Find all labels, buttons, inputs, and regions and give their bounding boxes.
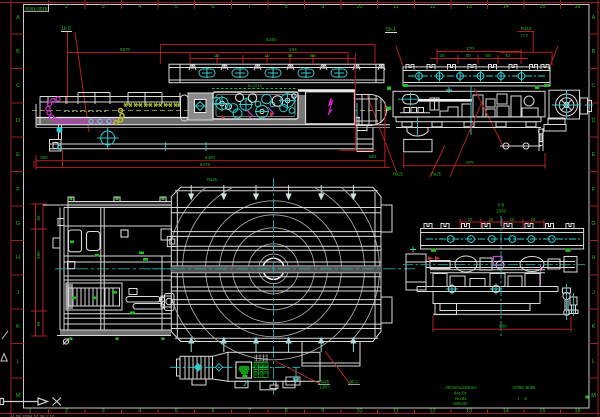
svg-text:B: B [592,49,596,55]
svg-text:5: 5 [175,4,178,10]
svg-text:8: 8 [285,4,288,10]
svg-text:HTBE-8085: HTBE-8085 [513,385,536,390]
svg-text:14: 14 [503,409,509,415]
svg-text:20: 20 [531,217,536,222]
svg-text:600: 600 [499,324,507,329]
svg-text:Ra25: Ra25 [431,172,442,177]
svg-text:8: 8 [285,409,288,415]
svg-text:E: E [16,152,20,158]
svg-text:3: 3 [102,4,105,10]
svg-text:3: 3 [102,409,105,415]
svg-text:13: 13 [466,409,472,415]
svg-text:7: 7 [248,409,251,415]
svg-text:580: 580 [36,251,41,259]
svg-text:11: 11 [393,4,399,10]
svg-text:12: 12 [430,409,436,415]
svg-text:H: H [592,255,596,261]
svg-text:5 B: 5 B [498,203,505,208]
svg-text:10: 10 [356,409,362,415]
svg-text:16: 16 [574,409,580,415]
svg-text:Ra12: Ra12 [521,26,532,31]
svg-text:6: 6 [211,4,214,10]
svg-text:13: 13 [466,4,472,10]
svg-text:10: 10 [264,53,270,58]
svg-text:16: 16 [574,4,580,10]
svg-text:9: 9 [321,4,324,10]
svg-text:84±.8r: 84±.8r [454,391,467,396]
svg-text:244: 244 [289,47,297,52]
svg-text:20: 20 [510,217,515,222]
svg-text:38: 38 [287,53,293,58]
svg-text:A: A [16,15,20,21]
svg-text:8081-3018: 8081-3018 [26,6,48,11]
svg-text:C: C [592,83,596,89]
svg-text:20: 20 [465,53,471,58]
svg-text:4: 4 [138,4,141,10]
svg-text:20: 20 [439,53,445,58]
svg-text:170: 170 [466,46,474,51]
svg-text:20: 20 [468,217,473,222]
svg-text:1250: 1250 [319,385,329,390]
svg-text:5446: 5446 [266,37,277,42]
svg-text:M: M [16,393,21,399]
svg-text:D: D [592,118,596,124]
svg-text:65: 65 [36,321,41,327]
svg-text:11: 11 [393,409,399,415]
svg-text:BX: BX [310,53,316,58]
svg-text:Ra25: Ra25 [393,172,404,177]
svg-text:L: L [592,359,595,365]
svg-text:J: J [592,290,595,296]
svg-text:2: 2 [65,409,68,415]
svg-text:15: 15 [539,4,545,10]
svg-text:9: 9 [321,409,324,415]
svg-text:5: 5 [175,409,178,415]
svg-text:Ra25: Ra25 [207,177,218,182]
svg-text:10: 10 [356,4,362,10]
svg-text:1 8: 1 8 [517,396,527,401]
svg-text:4: 4 [138,409,141,415]
svg-text:B: B [16,49,20,55]
svg-text:7: 7 [248,4,251,10]
svg-text:2: 2 [65,4,68,10]
svg-text:1565: 1565 [496,209,507,214]
svg-text:Ra25: Ra25 [319,379,330,384]
svg-text:E: E [592,152,596,158]
svg-text:200mmx250mm: 200mmx250mm [445,385,477,390]
svg-text:940: 940 [40,155,48,160]
svg-text:J: J [17,290,20,296]
svg-text:G: G [591,221,595,227]
svg-text:12.5: 12.5 [520,33,529,38]
svg-text:5b.1: 5b.1 [350,379,359,384]
svg-text:5b1: 5b1 [369,154,377,159]
svg-text:12: 12 [430,4,436,10]
svg-text:65: 65 [36,215,41,221]
svg-text:180x80: 180x80 [453,401,468,406]
svg-text:K: K [592,324,596,330]
svg-text:K: K [16,324,20,330]
svg-text:5870: 5870 [120,47,131,52]
svg-text:D: D [16,118,20,124]
svg-text:M: M [591,393,596,399]
svg-text:G: G [16,221,20,227]
svg-text:H: H [16,255,20,261]
svg-text:A: A [592,15,596,21]
svg-text:6478: 6478 [200,162,211,167]
svg-text:14: 14 [503,4,509,10]
svg-text:L: L [16,359,19,365]
svg-text:5440: 5440 [205,155,216,160]
svg-text:6: 6 [211,409,214,415]
svg-text:15: 15 [539,409,545,415]
svg-text:51: 51 [505,53,511,58]
svg-text:50: 50 [485,53,491,58]
svg-text:20: 20 [489,217,494,222]
svg-text:B=1215: B=1215 [248,83,263,88]
svg-text:C: C [16,83,20,89]
svg-text:975: 975 [466,160,474,165]
svg-text:20: 20 [214,53,220,58]
